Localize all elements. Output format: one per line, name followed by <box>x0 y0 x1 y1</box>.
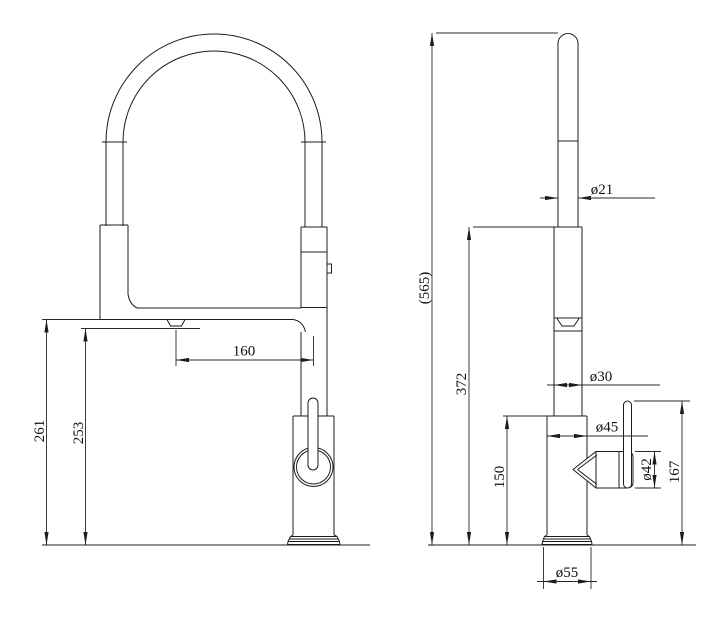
dim-spout-reach-label: 160 <box>233 344 256 360</box>
dim-body-diameter: ø45 <box>547 420 648 437</box>
side-view: (565) 372 150 167 ø21 <box>417 33 696 589</box>
dim-base-diameter: ø55 <box>537 547 597 589</box>
arch-inner <box>123 51 305 142</box>
front-view: 160 261 253 <box>32 34 370 545</box>
dim-riser-diameter: ø30 <box>547 369 660 385</box>
dim-overall-height: (565) <box>417 33 558 545</box>
dim-spout-height-label: 261 <box>32 420 48 443</box>
dim-body-diameter-label: ø45 <box>596 420 619 436</box>
dim-spout-reach: 160 <box>176 330 314 366</box>
dim-handle-diameter-label: ø42 <box>639 458 655 481</box>
handle-lever-front <box>308 398 318 470</box>
arch-outer <box>106 34 322 142</box>
dim-spout-height: 261 <box>32 320 100 546</box>
dim-riser-diameter-label: ø30 <box>590 369 613 385</box>
dim-handle-diameter: ø42 <box>635 452 661 489</box>
spout-tube-side <box>558 34 578 228</box>
dim-handle-height-label: 167 <box>667 460 683 483</box>
sleeve-joint-detail <box>554 318 582 331</box>
aerator-outlet <box>167 320 185 327</box>
faucet-drawing: 160 261 253 <box>0 0 720 620</box>
handle-lever-side <box>624 401 632 488</box>
arch-legs <box>106 142 322 227</box>
dim-overall-height-label: (565) <box>417 272 433 305</box>
dim-spout-tube-diameter-label: ø21 <box>591 182 614 198</box>
base-flare-side <box>542 535 592 545</box>
dim-spout-tube-diameter: ø21 <box>540 182 655 198</box>
base-flare-front <box>288 535 341 545</box>
hose-housing-left <box>100 225 137 319</box>
dim-spray-head-height-label: 372 <box>454 373 470 396</box>
clip-button <box>327 264 332 273</box>
dim-body-height: 150 <box>492 416 547 545</box>
technical-drawing-canvas: 160 261 253 <box>0 0 720 620</box>
dim-base-diameter-label: ø55 <box>556 565 579 581</box>
spray-head-sleeve <box>554 227 582 416</box>
dim-outlet-height: 253 <box>71 329 200 546</box>
dim-outlet-height-label: 253 <box>71 422 87 445</box>
dim-body-height-label: 150 <box>492 466 508 489</box>
dim-spray-head-height: 372 <box>454 227 554 545</box>
spray-head-housing <box>301 227 327 308</box>
